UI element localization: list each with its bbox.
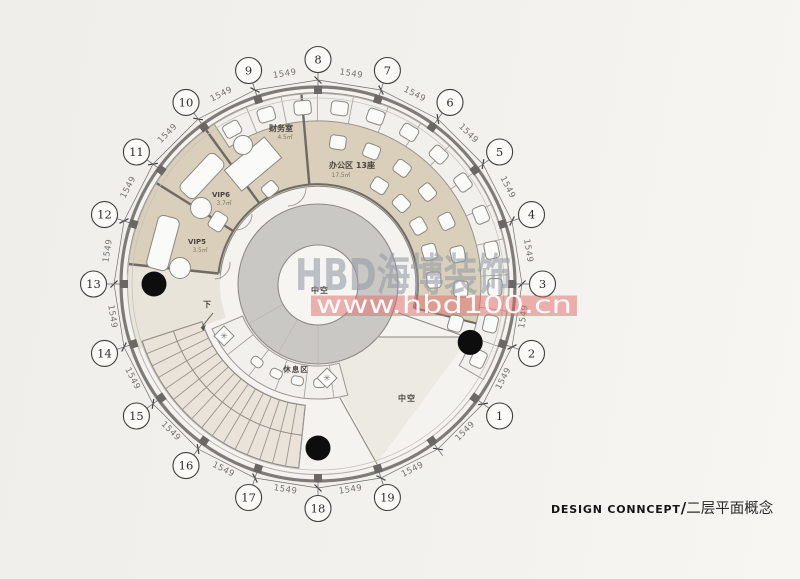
column-marker <box>142 272 167 297</box>
grid-bubble-13: 13 <box>81 271 107 297</box>
column-marker <box>306 436 331 461</box>
grid-bubble-11: 11 <box>123 139 149 165</box>
grid-bubble-number: 13 <box>86 277 101 291</box>
grid-bubble-number: 14 <box>97 346 112 360</box>
grid-bubble-number: 15 <box>129 409 144 423</box>
snowflake-icon: ✳ <box>220 332 228 342</box>
presentation-sheet: ✳✳15491549154915491549154915491549154915… <box>0 0 800 579</box>
room-area: 4.5㎡ <box>277 133 292 141</box>
dimension-label: 1549 <box>119 175 139 201</box>
room-label: 休息区 <box>282 364 309 374</box>
caption-chinese: 二层平面概念 <box>686 501 773 517</box>
grid-bubble-14: 14 <box>92 340 118 366</box>
grid-bubble-9: 9 <box>236 58 262 84</box>
round-table <box>170 258 191 279</box>
grid-bubble-number: 19 <box>380 491 395 505</box>
watermark-url: www.hbd100.cn <box>316 290 572 319</box>
grid-bubble-8: 8 <box>305 47 331 73</box>
office-chair <box>329 134 347 150</box>
room-label: 中空 <box>398 393 416 403</box>
grid-bubble-number: 2 <box>528 346 535 360</box>
grid-bubble-2: 2 <box>519 340 545 366</box>
grid-bubble-16: 16 <box>173 453 199 479</box>
room-label: 财务室 <box>268 123 293 133</box>
grid-bubble-10: 10 <box>173 89 199 115</box>
grid-bubble-17: 17 <box>236 485 262 511</box>
room-label: VIP6 <box>212 191 230 199</box>
grid-bubble-number: 16 <box>179 459 194 473</box>
booth-chair <box>330 100 349 116</box>
dimension-label: 1549 <box>209 85 235 105</box>
dimension-label: 1549 <box>273 483 298 497</box>
column-marker <box>458 330 483 355</box>
grid-bubble-number: 17 <box>241 491 256 505</box>
grid-bubble-1: 1 <box>487 403 513 429</box>
dimension-label: 1549 <box>156 122 180 146</box>
floor-plan-svg: ✳✳15491549154915491549154915491549154915… <box>0 0 800 579</box>
dimension-label: 1549 <box>521 238 535 263</box>
grid-bubble-number: 4 <box>528 208 535 222</box>
room-label: 下 <box>203 300 211 309</box>
grid-bubble-number: 18 <box>311 502 326 516</box>
grid-bubble-number: 5 <box>496 145 503 159</box>
grid-bubble-number: 12 <box>97 208 112 222</box>
sheet-caption: DESIGN CONNCEPT/二层平面概念 <box>551 497 773 518</box>
grid-bubble-number: 8 <box>314 53 321 67</box>
round-table <box>191 198 212 219</box>
room-label: VIP5 <box>188 238 206 246</box>
room-label: 办公区 13座 <box>329 160 375 170</box>
dimension-label: 1549 <box>101 238 115 263</box>
grid-bubble-12: 12 <box>92 202 118 228</box>
room-area: 3.5㎡ <box>192 246 207 254</box>
finance-chair <box>234 136 253 155</box>
dimension-label: 1549 <box>105 304 119 329</box>
booth-chair <box>294 100 312 115</box>
room-area: 17.5㎡ <box>332 171 351 179</box>
grid-bubble-number: 3 <box>539 277 546 291</box>
dimension-label: 1549 <box>498 175 518 201</box>
snowflake-icon: ✳ <box>323 374 331 384</box>
grid-bubble-number: 11 <box>129 145 144 159</box>
grid-bubble-7: 7 <box>374 58 400 84</box>
dimension-label: 1549 <box>402 85 428 105</box>
dimension-label: 1549 <box>272 67 297 81</box>
grid-bubble-number: 1 <box>496 409 503 423</box>
grid-bubble-18: 18 <box>305 496 331 522</box>
lounge-seat <box>291 375 305 386</box>
grid-bubble-number: 7 <box>384 64 391 78</box>
caption-english: DESIGN CONNCEPT <box>551 503 681 516</box>
dimension-label: 1549 <box>339 67 364 81</box>
grid-bubble-number: 6 <box>446 95 453 109</box>
grid-bubble-number: 10 <box>179 95 194 109</box>
grid-bubble-15: 15 <box>123 403 149 429</box>
room-area: 3.7㎡ <box>216 199 231 207</box>
dimension-label: 1549 <box>338 483 363 497</box>
grid-bubble-4: 4 <box>519 202 545 228</box>
grid-bubble-19: 19 <box>374 485 400 511</box>
grid-bubble-6: 6 <box>437 89 463 115</box>
grid-bubble-5: 5 <box>487 139 513 165</box>
grid-bubble-number: 9 <box>245 64 252 78</box>
dimension-label: 1549 <box>456 122 480 146</box>
